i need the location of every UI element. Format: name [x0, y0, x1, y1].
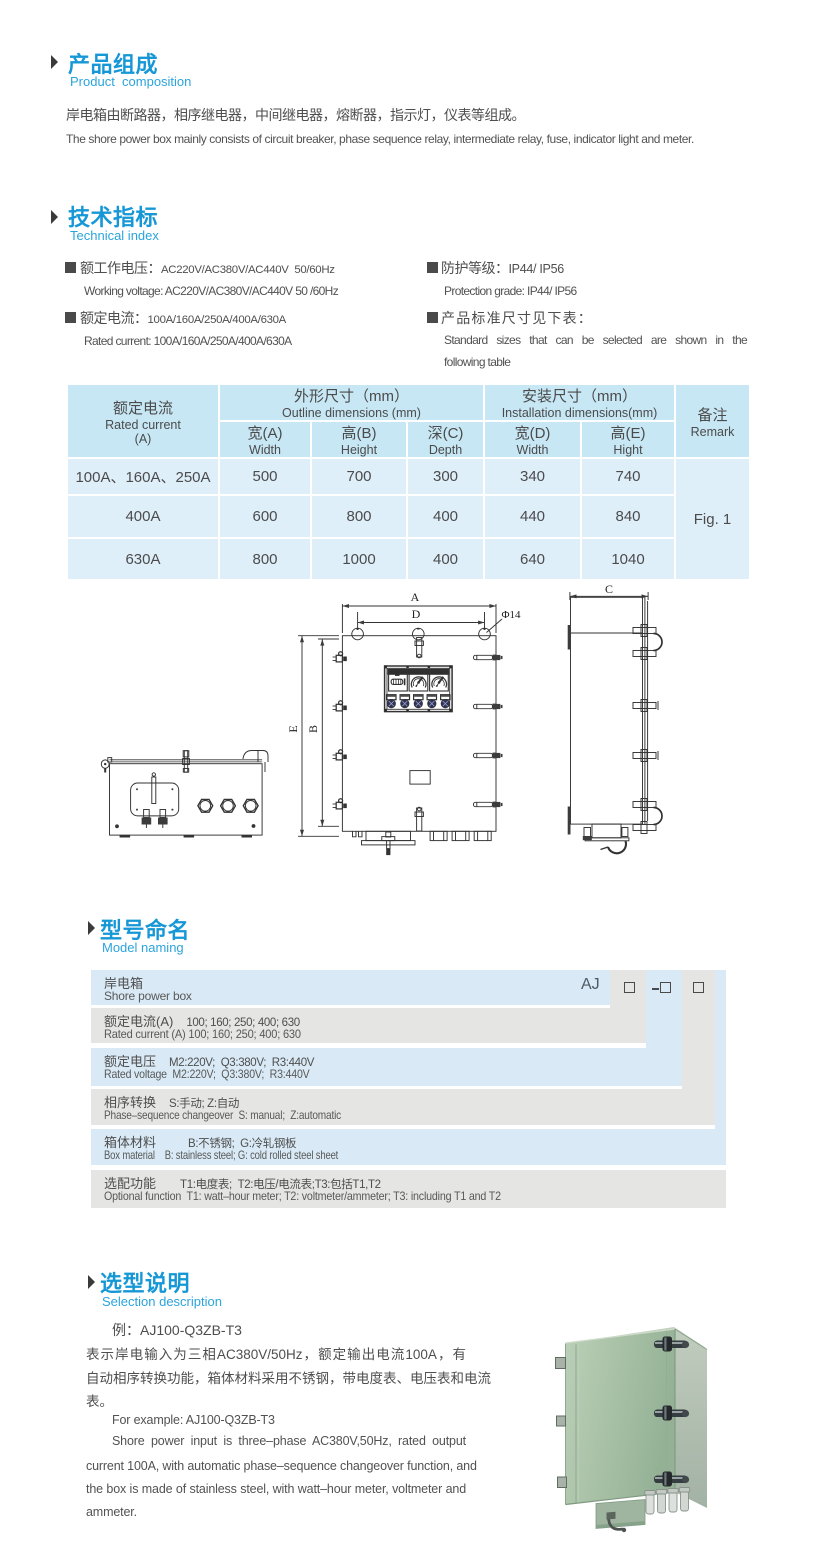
svg-text:Φ14: Φ14 — [502, 609, 522, 621]
svg-text:D: D — [412, 607, 421, 621]
svg-text:E: E — [286, 725, 300, 732]
svg-text:B: B — [306, 725, 320, 733]
svg-text:C: C — [605, 582, 613, 596]
svg-text:A: A — [411, 590, 420, 604]
